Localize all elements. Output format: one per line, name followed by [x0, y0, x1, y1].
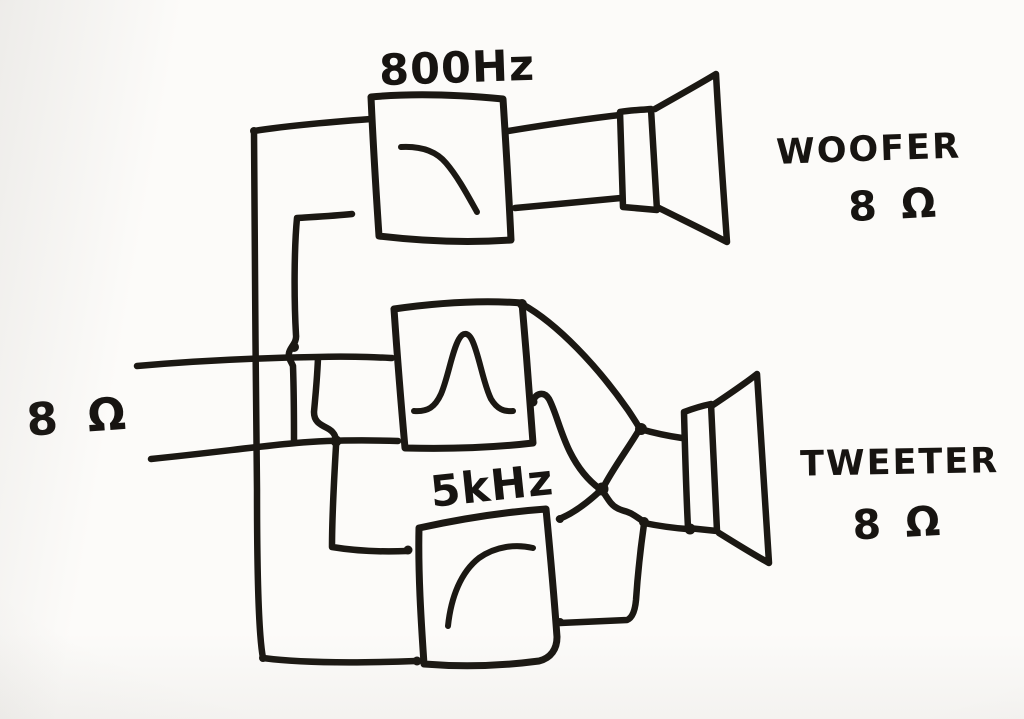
- junction-blob: [259, 654, 267, 662]
- junction-blob: [404, 546, 413, 555]
- input-impedance-label: 8 Ω: [25, 386, 135, 446]
- junction-blob: [529, 398, 538, 407]
- junction-blob: [289, 342, 299, 352]
- lowpass-filter-box: [371, 95, 511, 242]
- woofer-cone: [655, 74, 727, 242]
- tweeter-speaker-icon: [684, 374, 769, 563]
- junction-blob: [596, 483, 609, 496]
- junction-blob: [635, 423, 647, 435]
- tweeter-cone: [713, 374, 769, 563]
- junction-blob: [250, 127, 258, 135]
- bandpass-swoop-wire: [522, 304, 682, 438]
- crossover-sketch: 8 Ω 800Hz 5kHz WOOFER 8 Ω TWEETER 8 Ω: [0, 0, 1024, 719]
- tweeter-magnet: [684, 404, 717, 531]
- junction-blob: [556, 515, 564, 523]
- swoop-branch-wire: [603, 430, 639, 488]
- bandpass-filter-box: [394, 302, 533, 449]
- junction-blob: [413, 657, 422, 666]
- tweeter-impedance-label: 8 Ω: [851, 497, 946, 550]
- lowpass-to-woofer-top-wire: [508, 115, 620, 131]
- crossover-schematic-drawing: 8 Ω 800Hz 5kHz WOOFER 8 Ω TWEETER 8 Ω: [0, 0, 1024, 719]
- highpass-box-outline: [419, 509, 557, 666]
- woofer-speaker-icon: [620, 74, 727, 242]
- junction-blob: [331, 436, 342, 447]
- junction-blob: [639, 517, 649, 527]
- input-top-wire: [137, 357, 392, 366]
- lowpass-box-outline: [371, 95, 511, 242]
- woofer-magnet: [620, 109, 657, 210]
- lowpass-return-bus-wire: [289, 214, 352, 440]
- input-bottom-wire: [151, 440, 398, 459]
- junction-blob: [556, 618, 564, 626]
- junction-link-wire: [602, 490, 644, 522]
- junction-to-tweeter-wire: [644, 523, 687, 529]
- woofer-name-label: WOOFER: [776, 126, 962, 172]
- junction-blob: [685, 524, 696, 535]
- junction-blob: [517, 299, 527, 309]
- highpass-lower-output-wire: [560, 524, 644, 623]
- highpass-upper-output-wire: [559, 491, 600, 519]
- highpass-filter-box: [419, 509, 557, 666]
- woofer-impedance-label: 8 Ω: [847, 178, 942, 231]
- lowpass-to-woofer-bottom-wire: [515, 198, 621, 208]
- lowpass-frequency-label: 800Hz: [378, 41, 535, 96]
- highpass-feed-bus-wire: [314, 358, 407, 551]
- bandpass-box-outline: [394, 302, 533, 449]
- tweeter-name-label: TWEETER: [800, 441, 1000, 484]
